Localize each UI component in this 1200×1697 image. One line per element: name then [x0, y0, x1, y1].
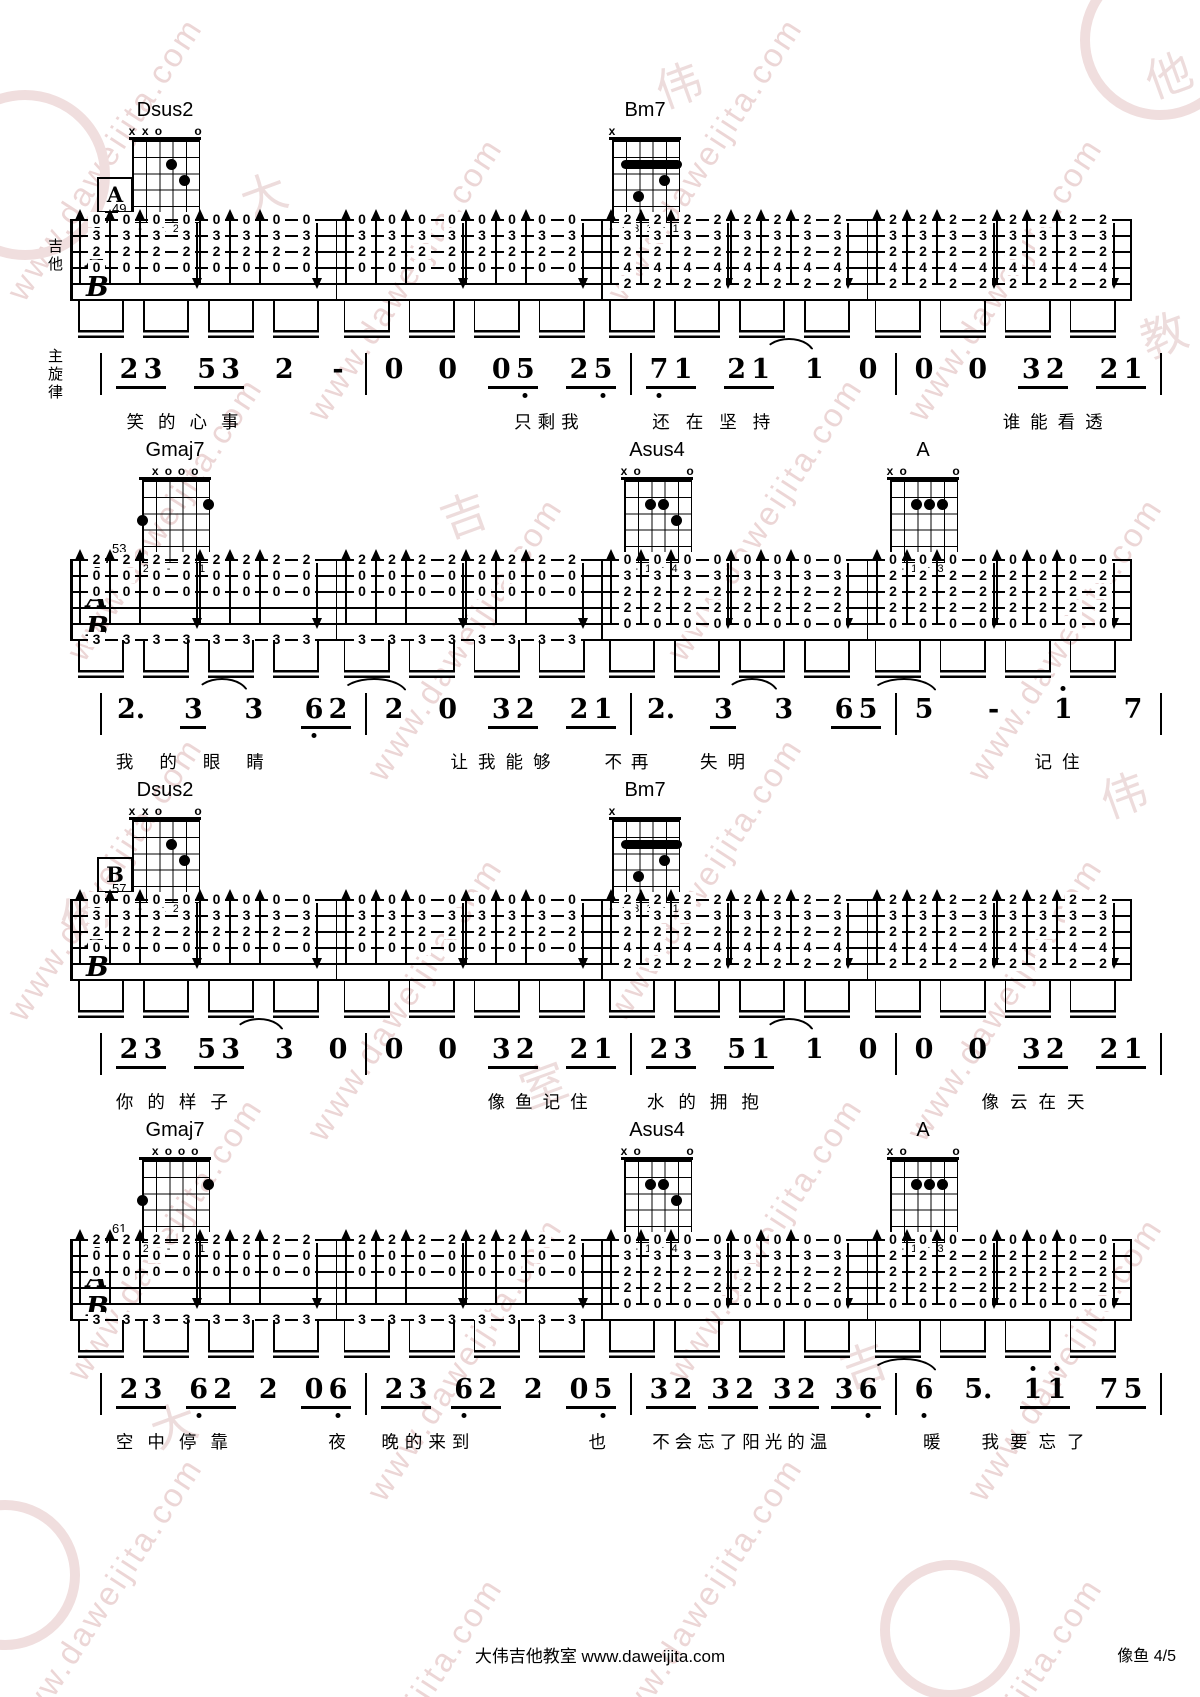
tab-fret-number: 0	[534, 1248, 551, 1263]
tab-fret-number: 0	[534, 260, 551, 275]
strum-up-arrow	[79, 1231, 81, 1303]
tab-strum-event: 23242	[707, 899, 727, 980]
beam-bar	[539, 1010, 585, 1018]
rhythm-beam-group	[1070, 1320, 1116, 1358]
strum-up-arrow	[790, 1231, 792, 1303]
tab-fret-number: 2	[885, 600, 902, 615]
staff-barline	[70, 899, 73, 980]
tab-fret-number: 3	[619, 1248, 636, 1263]
tab-fret-number: 0	[384, 940, 401, 955]
melody-note: 7	[647, 353, 671, 386]
muted-string-marker: x	[618, 465, 630, 477]
staff-barline	[601, 899, 603, 980]
note-group: 21	[1096, 1033, 1146, 1069]
tab-fret-number: 0	[534, 568, 551, 583]
rhythm-beam-group	[409, 640, 455, 678]
rhythm-beam-group	[1005, 980, 1051, 1018]
rhythm-beam-group	[344, 1320, 390, 1358]
tab-fret-number: 2	[1005, 584, 1022, 599]
tab-fret-number: 0	[1095, 552, 1112, 567]
note-group: 7	[1120, 693, 1146, 726]
melody-note: 2	[647, 1033, 671, 1066]
melody-note: 1	[1045, 1373, 1069, 1406]
melody-note: 5	[591, 1373, 615, 1406]
tab-fret-number: 0	[354, 212, 371, 227]
strum-down-arrow	[727, 903, 729, 967]
strum-up-arrow	[525, 551, 527, 623]
chord-name: Bm7	[595, 99, 695, 122]
rhythm-beam-group	[804, 1320, 850, 1358]
melody-note: 3	[647, 1373, 671, 1406]
melody-note: 1	[1021, 1373, 1045, 1406]
strum-up-arrow	[610, 551, 612, 623]
tab-strum-event: 02220	[1033, 559, 1053, 640]
note-group: 3	[771, 693, 797, 726]
tab-fret-number: 2	[384, 552, 401, 567]
octave-dot-low	[461, 1413, 466, 1418]
beam-bar	[674, 1350, 720, 1358]
strum-up-arrow	[229, 211, 231, 283]
strum-up-arrow	[610, 1231, 612, 1303]
tab-fret-number: 2	[679, 892, 696, 907]
strum-up-arrow	[109, 1231, 111, 1303]
octave-dot-low	[922, 1413, 927, 1418]
sheet-music-page: www.daweijita.comwww.daweijita.comwww.da…	[0, 0, 1200, 1697]
tab-strum-event: 2003	[146, 1239, 166, 1320]
tab-strum-event: 23242	[767, 219, 787, 300]
note-group: 21	[566, 693, 616, 729]
tab-strum-event: 02220	[1003, 1239, 1023, 1320]
tab-strum-event: 2003	[176, 1239, 196, 1320]
rhythm-beam-group	[804, 640, 850, 678]
beam-bar	[674, 670, 720, 678]
strum-up-arrow	[1026, 551, 1028, 623]
tab-fret-number: 2	[945, 1248, 962, 1263]
tab-fret-number: 3	[208, 228, 225, 243]
melody-note: 0	[912, 1033, 936, 1066]
tab-strum-event: 0320	[502, 219, 522, 300]
melody-note: 3	[711, 693, 735, 726]
tab-fret-number: 2	[799, 276, 816, 291]
rhythm-beam-group	[804, 980, 850, 1018]
tab-fret-number: 0	[208, 568, 225, 583]
beam-bar	[474, 330, 520, 338]
melody-note: 0	[436, 1033, 460, 1066]
tab-fret-number: 0	[504, 212, 521, 227]
tab-fret-number: 0	[208, 892, 225, 907]
strum-up-arrow	[760, 551, 762, 623]
staff-barline	[70, 559, 73, 640]
open-string-marker: o	[176, 465, 188, 477]
beam-bar	[739, 330, 785, 338]
open-string-marker: o	[189, 465, 201, 477]
tab-fret-number: 0	[679, 552, 696, 567]
chord-finger-dot	[911, 499, 922, 510]
tab-fret-number: 0	[474, 212, 491, 227]
tab-fret-number: 2	[504, 924, 521, 939]
note-group: 21	[566, 1033, 616, 1069]
tab-fret-number: 0	[118, 584, 135, 599]
strum-up-arrow	[936, 211, 938, 283]
tab-fret-number: 3	[829, 228, 846, 243]
tab-fret-number: 2	[829, 924, 846, 939]
tab-fret-number: 2	[354, 924, 371, 939]
tab-fret-number: 2	[238, 1232, 255, 1247]
tab-fret-number: 3	[769, 908, 786, 923]
note-group: 1	[801, 353, 827, 386]
tab-strum-event: 23242	[943, 219, 963, 300]
strum-up-arrow	[876, 891, 878, 963]
tab-fret-number: 2	[534, 1232, 551, 1247]
melody-note: 6	[302, 693, 326, 726]
rhythm-beam-group	[875, 980, 921, 1018]
chord-name: Bm7	[595, 779, 695, 802]
beam-bar	[539, 330, 585, 338]
tab-fret-number: 4	[649, 260, 666, 275]
tab-strum-event: 2003	[352, 1239, 372, 1320]
strum-up-arrow	[670, 891, 672, 963]
strum-down-arrow	[1113, 563, 1115, 627]
tab-strum-event: 03220	[647, 1239, 667, 1320]
tab-fret-number: 2	[885, 212, 902, 227]
tab-fret-number: 2	[444, 552, 461, 567]
tab-fret-number: 2	[975, 568, 992, 583]
tab-fret-number: 0	[268, 568, 285, 583]
tab-fret-number: 2	[268, 1232, 285, 1247]
strum-up-arrow	[465, 551, 467, 623]
lyric-phrase: 也	[589, 1429, 617, 1454]
strum-up-arrow	[345, 891, 347, 963]
strum-up-arrow	[1056, 211, 1058, 283]
tab-fret-number: 2	[769, 892, 786, 907]
tab-fret-number: 0	[444, 212, 461, 227]
tab-fret-number: 0	[915, 1296, 932, 1311]
tab-fret-number: 2	[709, 924, 726, 939]
tab-fret-number: 2	[414, 924, 431, 939]
tab-fret-number: 0	[148, 1264, 165, 1279]
strum-up-arrow	[730, 1231, 732, 1303]
rhythm-beam-group	[344, 300, 390, 338]
tab-fret-number: 2	[709, 244, 726, 259]
tab-strum-event: 2003	[86, 1239, 106, 1320]
tab-fret-number: 0	[1065, 1296, 1082, 1311]
tab-fret-number: 0	[975, 1232, 992, 1247]
strum-up-arrow	[640, 211, 642, 283]
tab-fret-number: 2	[414, 1232, 431, 1247]
tab-fret-number: 2	[799, 956, 816, 971]
beam-bar	[875, 670, 921, 678]
open-string-marker: o	[950, 465, 962, 477]
tab-fret-number: 3	[619, 568, 636, 583]
tab-fret-number: 2	[915, 568, 932, 583]
strum-down-arrow	[196, 1243, 198, 1307]
tab-fret-number: 3	[354, 228, 371, 243]
tab-strum-event: 02220	[1093, 1239, 1113, 1320]
tab-fret-number: 0	[414, 1264, 431, 1279]
tab-fret-number: 4	[829, 260, 846, 275]
note-group: 32	[488, 693, 538, 729]
rhythm-beam-group	[474, 980, 520, 1018]
tab-fret-number: 2	[1065, 584, 1082, 599]
tab-fret-number: 3	[709, 1248, 726, 1263]
staff-barline	[1130, 899, 1132, 980]
muted-string-marker: x	[139, 125, 151, 137]
tab-fret-number: 2	[619, 924, 636, 939]
melody-note: 6	[326, 1373, 350, 1406]
strum-down-arrow	[316, 563, 318, 627]
tab-fret-number: 3	[829, 1248, 846, 1263]
tab-strum-event: 2003	[236, 559, 256, 640]
tab-strum-event: 03220	[677, 1239, 697, 1320]
tab-strum-event: 02220	[1033, 1239, 1053, 1320]
tab-fret-number: 2	[178, 552, 195, 567]
tab-fret-number: 4	[975, 940, 992, 955]
tab-strum-event: 0320	[116, 219, 136, 300]
tab-strum-event: 02220	[1093, 559, 1113, 640]
melody-note: 2	[725, 353, 749, 386]
melody-note: 2	[326, 693, 350, 726]
tab-fret-number: 0	[238, 892, 255, 907]
beam-bar	[739, 1350, 785, 1358]
melody-note: 0	[382, 1033, 406, 1066]
tab-fret-number: 2	[885, 1248, 902, 1263]
tab-fret-number: 2	[799, 600, 816, 615]
note-group: 0	[911, 353, 937, 386]
tab-fret-number: 0	[118, 1248, 135, 1263]
chord-finger-dot	[633, 191, 644, 202]
rhythm-beam-group	[143, 980, 189, 1018]
strum-up-arrow	[259, 551, 261, 623]
tab-fret-number: 2	[619, 1264, 636, 1279]
tab-strum-event: 23242	[767, 899, 787, 980]
tab-fret-number: 0	[915, 552, 932, 567]
tab-fret-number: 0	[298, 892, 315, 907]
strum-up-arrow	[139, 891, 141, 963]
tab-strum-event: 2003	[116, 1239, 136, 1320]
tab-fret-number: 2	[799, 1280, 816, 1295]
muted-string-marker: x	[139, 805, 151, 817]
tab-fret-number: 0	[178, 584, 195, 599]
tab-fret-number: 2	[414, 552, 431, 567]
beam-bar	[539, 670, 585, 678]
tab-fret-number: 0	[444, 260, 461, 275]
tab-strum-event: 03220	[827, 559, 847, 640]
tab-fret-number: 4	[1095, 940, 1112, 955]
tab-fret-number: 2	[1095, 956, 1112, 971]
tab-fret-number: 0	[885, 616, 902, 631]
tab-fret-number: 2	[504, 244, 521, 259]
tab-strum-event: 23242	[617, 219, 637, 300]
tab-fret-number: 2	[1035, 276, 1052, 291]
strum-up-arrow	[259, 1231, 261, 1303]
tab-fret-number: 0	[649, 616, 666, 631]
tab-fret-number: 3	[1065, 228, 1082, 243]
tab-fret-number: 2	[238, 244, 255, 259]
tab-fret-number: 0	[208, 1264, 225, 1279]
tab-strum-event: 2003	[236, 1239, 256, 1320]
tab-fret-number: 0	[534, 584, 551, 599]
tab-fret-number: 2	[739, 956, 756, 971]
note-group: 21	[1096, 353, 1146, 389]
strum-down-arrow	[1113, 1243, 1115, 1307]
tab-fret-number: 0	[88, 212, 105, 227]
tab-strum-event: 23242	[707, 219, 727, 300]
tab-fret-number: 2	[1005, 276, 1022, 291]
tab-fret-number: 0	[354, 260, 371, 275]
beam-bar	[273, 330, 319, 338]
tab-strum-event: 0320	[352, 899, 372, 980]
tab-fret-number: 2	[829, 212, 846, 227]
tab-fret-number: 2	[1035, 924, 1052, 939]
melody-note: 5	[912, 693, 936, 726]
tab-fret-number: 2	[739, 1280, 756, 1295]
beam-bar	[344, 1010, 390, 1018]
strum-down-arrow	[196, 903, 198, 967]
strum-up-arrow	[525, 211, 527, 283]
tab-fret-number: 0	[474, 568, 491, 583]
tab-fret-number: 3	[1005, 908, 1022, 923]
tab-fret-number: 2	[915, 956, 932, 971]
tab-fret-number: 0	[118, 212, 135, 227]
tab-fret-number: 2	[739, 892, 756, 907]
strum-up-arrow	[375, 1231, 377, 1303]
beam-bar	[1070, 670, 1116, 678]
tab-fret-number: 0	[769, 1296, 786, 1311]
tab-fret-number: 3	[679, 568, 696, 583]
tab-fret-number: 0	[564, 892, 581, 907]
tab-fret-number: 2	[649, 1264, 666, 1279]
melody-note: 5	[195, 1033, 219, 1066]
tab-fret-number: 2	[208, 1232, 225, 1247]
tab-fret-number: 2	[1065, 600, 1082, 615]
tab-fret-number: 3	[975, 908, 992, 923]
staff-barline	[70, 219, 73, 300]
tab-fret-number: 0	[1065, 552, 1082, 567]
rhythm-beam-group	[409, 300, 455, 338]
tab-fret-number: 2	[829, 892, 846, 907]
rhythm-beam-group	[409, 1320, 455, 1358]
tab-fret-number: 2	[739, 584, 756, 599]
lyrics-row: 空中停靠夜晚的来到也不会忘了阳光的温暖我要忘了	[100, 1429, 1162, 1455]
rhythm-beam-group	[78, 980, 124, 1018]
melody-note: 3	[489, 1033, 513, 1066]
beam-bar	[609, 330, 655, 338]
tab-fret-number: 0	[178, 1248, 195, 1263]
tab-strum-event: 23242	[677, 219, 697, 300]
tab-fret-number: 2	[649, 1280, 666, 1295]
tab-fret-number: 2	[1035, 956, 1052, 971]
tab-fret-number: 3	[178, 908, 195, 923]
tab-fret-number: 0	[268, 212, 285, 227]
tab-fret-number: 0	[709, 616, 726, 631]
tab-fret-number: 3	[739, 908, 756, 923]
tab-fret-number: 0	[384, 260, 401, 275]
melody-note: 3	[832, 1373, 856, 1406]
tab-fret-number: 2	[1095, 244, 1112, 259]
tab-fret-number: 0	[88, 568, 105, 583]
rhythm-beam-group	[609, 640, 655, 678]
tab-fret-number: 4	[739, 260, 756, 275]
tab-fret-number: 3	[414, 228, 431, 243]
tab-fret-number: 0	[534, 212, 551, 227]
tab-fret-number: 3	[534, 228, 551, 243]
tab-fret-number: 2	[975, 584, 992, 599]
muted-string-marker: x	[126, 805, 138, 817]
tab-strum-event: 23242	[883, 899, 903, 980]
beam-bar	[143, 1350, 189, 1358]
melody-note: 2.	[117, 693, 145, 726]
melody-barline	[1160, 353, 1162, 395]
tab-fret-number: 3	[619, 228, 636, 243]
tab-strum-event: 0320	[176, 899, 196, 980]
tab-fret-number: 2	[208, 244, 225, 259]
tab-fret-number: 0	[474, 1264, 491, 1279]
tab-fret-number: 2	[945, 1280, 962, 1295]
strum-down-arrow	[462, 1243, 464, 1307]
rhythm-beam-group	[1005, 1320, 1051, 1358]
tab-fret-number: 0	[1005, 616, 1022, 631]
tab-strum-event: 23242	[647, 899, 667, 980]
chord-barre	[621, 840, 682, 849]
muted-string-marker: x	[149, 465, 161, 477]
tab-strum-event: 2003	[502, 559, 522, 640]
tab-fret-number: 0	[208, 1248, 225, 1263]
strum-down-arrow	[582, 563, 584, 627]
tab-fret-number: 0	[414, 212, 431, 227]
tab-strum-event: 2003	[86, 559, 106, 640]
beam-bar	[474, 1350, 520, 1358]
tab-strum-event: 2003	[206, 1239, 226, 1320]
tab-fret-number: 0	[945, 1296, 962, 1311]
melody-row: 2.33622032212.33655-17	[100, 693, 1162, 749]
tab-strum-event: 03220	[677, 559, 697, 640]
tab-fret-number: 0	[148, 568, 165, 583]
tab-fret-number: 2	[1035, 212, 1052, 227]
tab-strum-event: 23242	[677, 899, 697, 980]
beam-bar	[273, 670, 319, 678]
tab-strum-event: 23242	[797, 899, 817, 980]
tab-fret-number: 2	[885, 244, 902, 259]
note-group: 32	[708, 1373, 758, 1409]
rhythm-beam-group	[674, 980, 720, 1018]
tab-fret-number: 2	[208, 924, 225, 939]
muted-string-marker: x	[126, 125, 138, 137]
tab-fret-number: 0	[679, 1296, 696, 1311]
melody-measure: 003221	[897, 353, 1160, 389]
tab-fret-number: 0	[769, 552, 786, 567]
strum-up-arrow	[79, 211, 81, 283]
tab-fret-number: 2	[739, 924, 756, 939]
tab-fret-number: 3	[829, 568, 846, 583]
rhythm-beam-group	[344, 640, 390, 678]
tab-fret-number: 2	[679, 600, 696, 615]
beam-bar	[143, 670, 189, 678]
melody-note: 0	[489, 353, 513, 386]
beam-bar	[78, 1010, 124, 1018]
tab-fret-number: 2	[885, 956, 902, 971]
staff-barline	[70, 1239, 73, 1320]
beam-bar	[409, 330, 455, 338]
tab-fret-number: 4	[1095, 260, 1112, 275]
tab-fret-number: 0	[564, 212, 581, 227]
tab-fret-number: 2	[739, 600, 756, 615]
tab-strum-event: 2003	[176, 559, 196, 640]
tab-strum-event: 23242	[943, 899, 963, 980]
tab-fret-number: 4	[619, 260, 636, 275]
melody-note: 2	[1043, 353, 1067, 386]
tab-fret-number: 2	[504, 552, 521, 567]
melody-note: 6	[452, 1373, 476, 1406]
